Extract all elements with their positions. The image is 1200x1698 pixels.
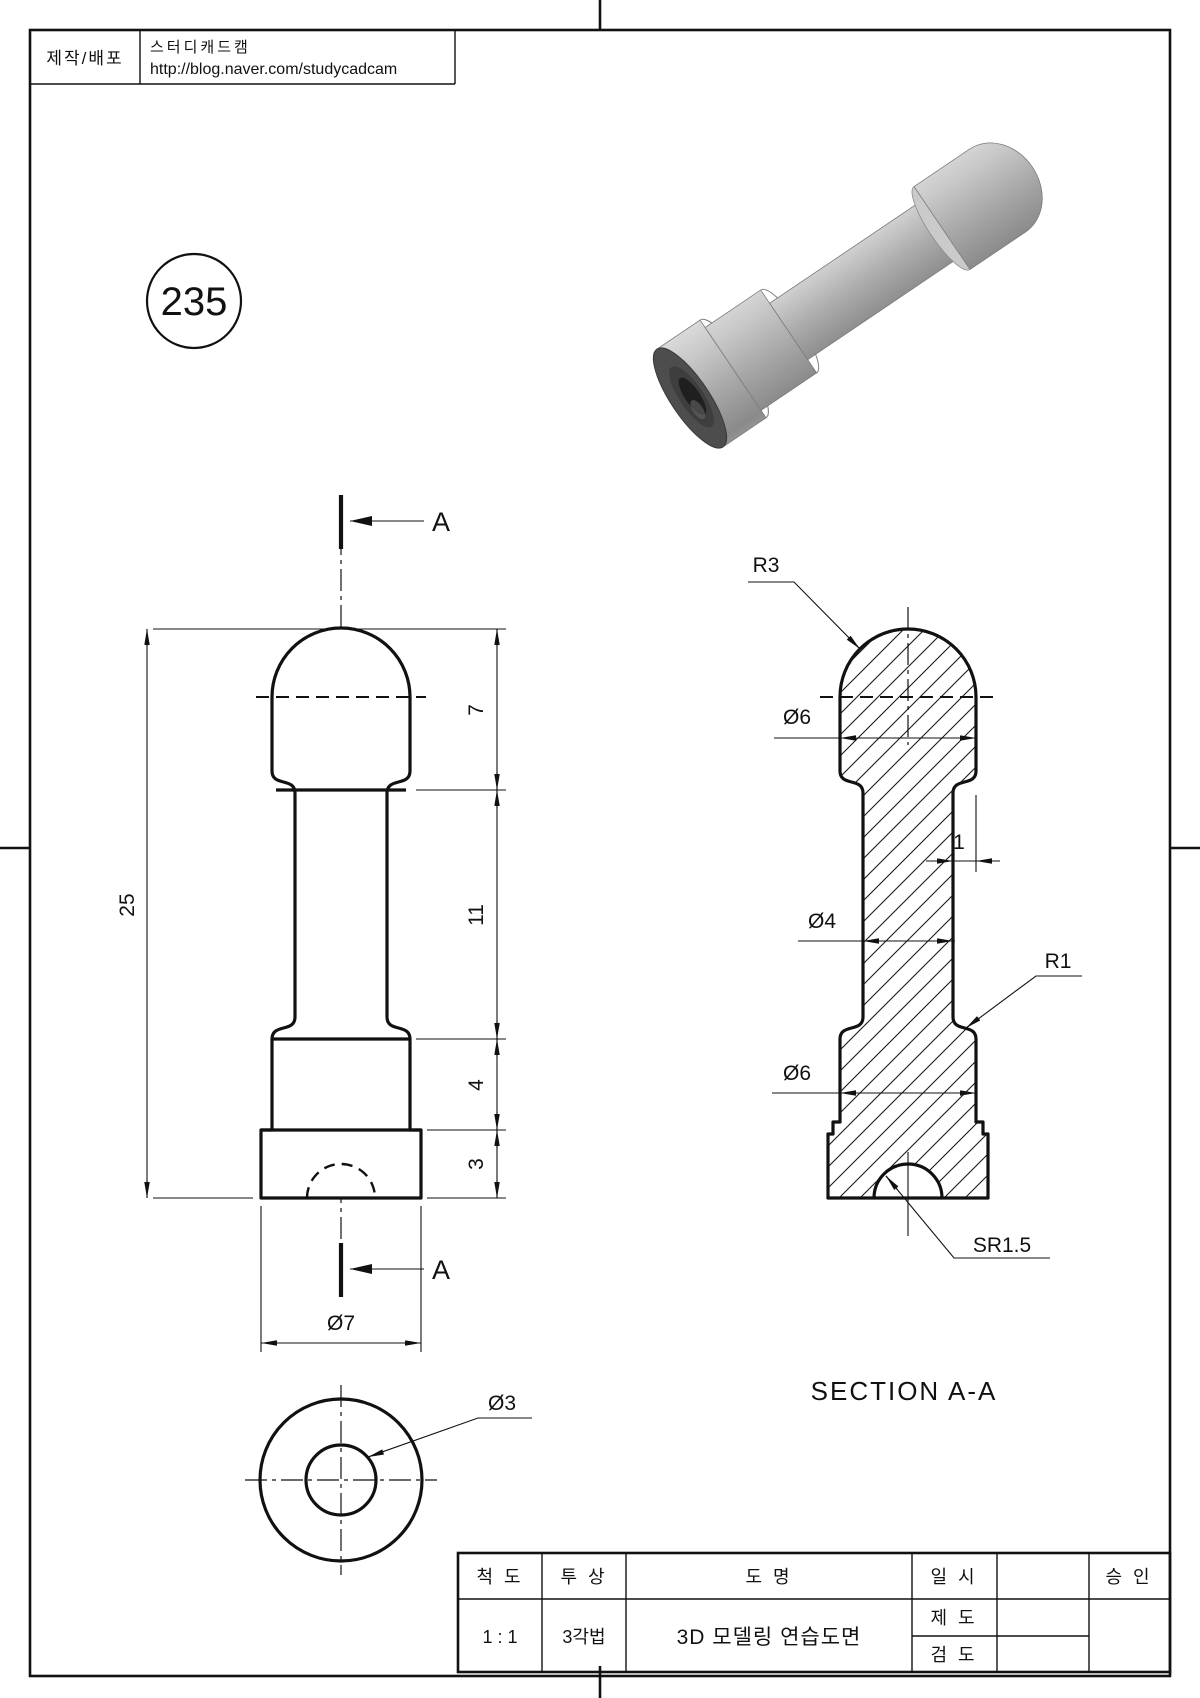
leader-o3 — [368, 1418, 532, 1457]
leader-r1 — [966, 976, 1082, 1028]
dim-text-4: 4 — [465, 1079, 488, 1091]
section-title: SECTION A-A — [811, 1376, 998, 1406]
dim-text-o6-upper: Ø6 — [783, 706, 811, 729]
tb-scale-value: 1 : 1 — [482, 1627, 517, 1647]
arrowhead — [849, 638, 860, 649]
centering-marks — [0, 0, 1200, 1698]
front-view: A A 25 — [116, 495, 506, 1352]
arrowhead — [886, 1176, 897, 1189]
dim-fillet: R1 — [966, 950, 1082, 1028]
arrowhead — [966, 1018, 979, 1028]
dim-chain-right: 7 11 4 3 — [416, 629, 506, 1198]
section-outline-hatched — [828, 629, 988, 1198]
header-label: 제작/배포 — [46, 49, 123, 68]
leader-r3 — [748, 582, 860, 649]
dim-text-o7: Ø7 — [327, 1312, 355, 1335]
tb-draft-label: 제 도 — [930, 1608, 977, 1628]
dim-head-radius: R3 — [748, 554, 860, 649]
drawing-sheet: 제작/배포 스터디캐드캠 http://blog.naver.com/study… — [0, 0, 1200, 1698]
tb-approve-label: 승 인 — [1105, 1567, 1152, 1587]
bottom-view: Ø3 — [245, 1385, 532, 1575]
dim-text-1: 1 — [953, 831, 965, 854]
dim-text-o3: Ø3 — [488, 1392, 516, 1415]
section-cut-top: A — [341, 495, 450, 549]
arrowhead — [368, 1452, 383, 1457]
section-view: R3 Ø6 1 Ø4 R1 Ø6 — [748, 554, 1082, 1406]
tb-date-label: 일 시 — [930, 1567, 977, 1587]
dim-text-7: 7 — [465, 704, 488, 716]
dim-text-3: 3 — [465, 1158, 488, 1170]
front-outline — [261, 628, 421, 1198]
title-block: 척 도 투 상 도 명 일 시 승 인 1 : 1 3각법 3D 모델링 연습도… — [458, 1553, 1170, 1672]
tb-name-label: 도 명 — [745, 1567, 792, 1587]
section-cut-bottom: A — [341, 1243, 450, 1297]
dim-text-o4: Ø4 — [808, 910, 836, 933]
tb-check-label: 검 도 — [930, 1645, 977, 1665]
tb-scale-label: 척 도 — [476, 1567, 523, 1587]
dim-text-sr15: SR1.5 — [973, 1234, 1031, 1257]
dim-text-25: 25 — [116, 893, 139, 916]
drawing-number-balloon: 235 — [147, 254, 241, 348]
tb-projection-value: 3각법 — [562, 1627, 605, 1647]
dim-text-o6-lower: Ø6 — [783, 1062, 811, 1085]
iso-render — [641, 118, 1065, 457]
section-label-bottom: A — [432, 1255, 450, 1285]
tb-projection-label: 투 상 — [560, 1567, 607, 1587]
dim-hole-dia: Ø3 — [368, 1392, 532, 1457]
header-table: 제작/배포 스터디캐드캠 http://blog.naver.com/study… — [30, 30, 455, 84]
dim-text-r1: R1 — [1045, 950, 1072, 973]
drawing-number: 235 — [161, 280, 228, 324]
dim-text-r3: R3 — [753, 554, 780, 577]
tb-name-value: 3D 모델링 연습도면 — [677, 1626, 862, 1649]
sheet-border — [30, 30, 1170, 1676]
header-company: 스터디캐드캠 — [150, 39, 251, 56]
section-label-top: A — [432, 507, 450, 537]
header-url: http://blog.naver.com/studycadcam — [150, 61, 397, 78]
dim-text-11: 11 — [465, 904, 488, 926]
